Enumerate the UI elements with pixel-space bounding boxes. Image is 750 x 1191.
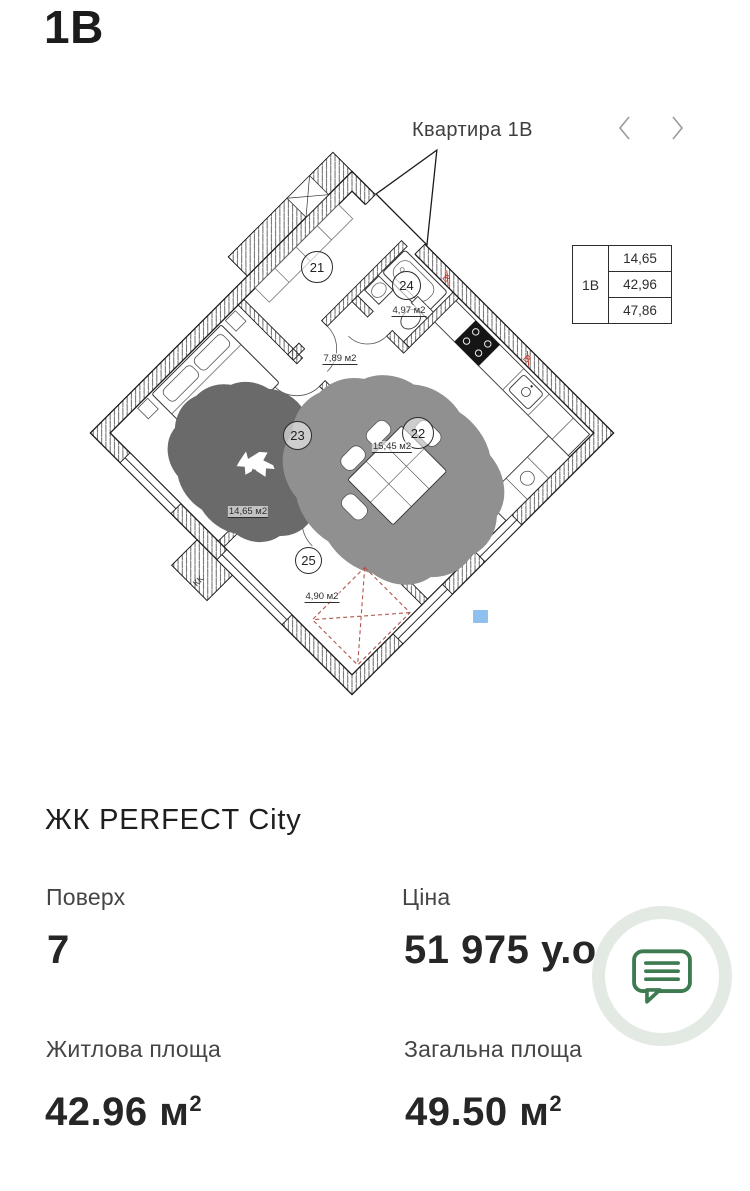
next-arrow-icon[interactable] (668, 114, 686, 142)
price-value: 51 975 у.о. (404, 928, 608, 973)
living-area-number: 42.96 (45, 1090, 148, 1134)
floor-value: 7 (47, 928, 70, 973)
blue-marker (473, 610, 488, 623)
chat-button[interactable] (592, 906, 732, 1046)
info-table-value-1: 14,65 (609, 246, 671, 272)
room-number-24: 24 (392, 271, 421, 300)
total-area-sup: 2 (549, 1091, 562, 1116)
floor-label: Поверх (46, 884, 125, 911)
info-table-value-3: 47,86 (609, 298, 671, 323)
price-label: Ціна (402, 884, 450, 911)
page-title: 1В (44, 0, 104, 54)
entrance-door (364, 142, 479, 257)
apartment-listing-page: { "header": { "code": "1В" }, "carousel"… (0, 0, 750, 1191)
living-area-unit: м (159, 1090, 189, 1134)
room-number-23: 23 (283, 421, 312, 450)
room-area-21: 7,89 м2 (323, 353, 358, 365)
room-number-21: 21 (301, 251, 333, 283)
info-table-unit: 1В (573, 246, 609, 323)
room-area-22: 15,45 м2 (372, 441, 412, 453)
chat-bubble-icon (629, 947, 695, 1005)
living-area-value: 42.96 м2 (45, 1090, 202, 1135)
apartment-info-table: 1В 14,65 42,96 47,86 (572, 245, 672, 324)
living-area-label: Житлова площа (46, 1036, 221, 1063)
total-area-label: Загальна площа (404, 1036, 582, 1063)
room-number-25: 25 (295, 547, 322, 574)
total-area-number: 49.50 (405, 1090, 508, 1134)
info-table-value-2: 42,96 (609, 272, 671, 298)
floor-plan-drawing: В В (60, 135, 650, 735)
total-area-value: 49.50 м2 (405, 1090, 562, 1135)
total-area-unit: м (519, 1090, 549, 1134)
living-area-sup: 2 (189, 1091, 202, 1116)
room-area-23: 14,65 м2 (228, 506, 268, 518)
room-area-24: 4,97 м2 (392, 305, 427, 317)
room-area-25: 4,90 м2 (305, 591, 340, 603)
complex-name: ЖК PERFECT City (45, 804, 302, 837)
